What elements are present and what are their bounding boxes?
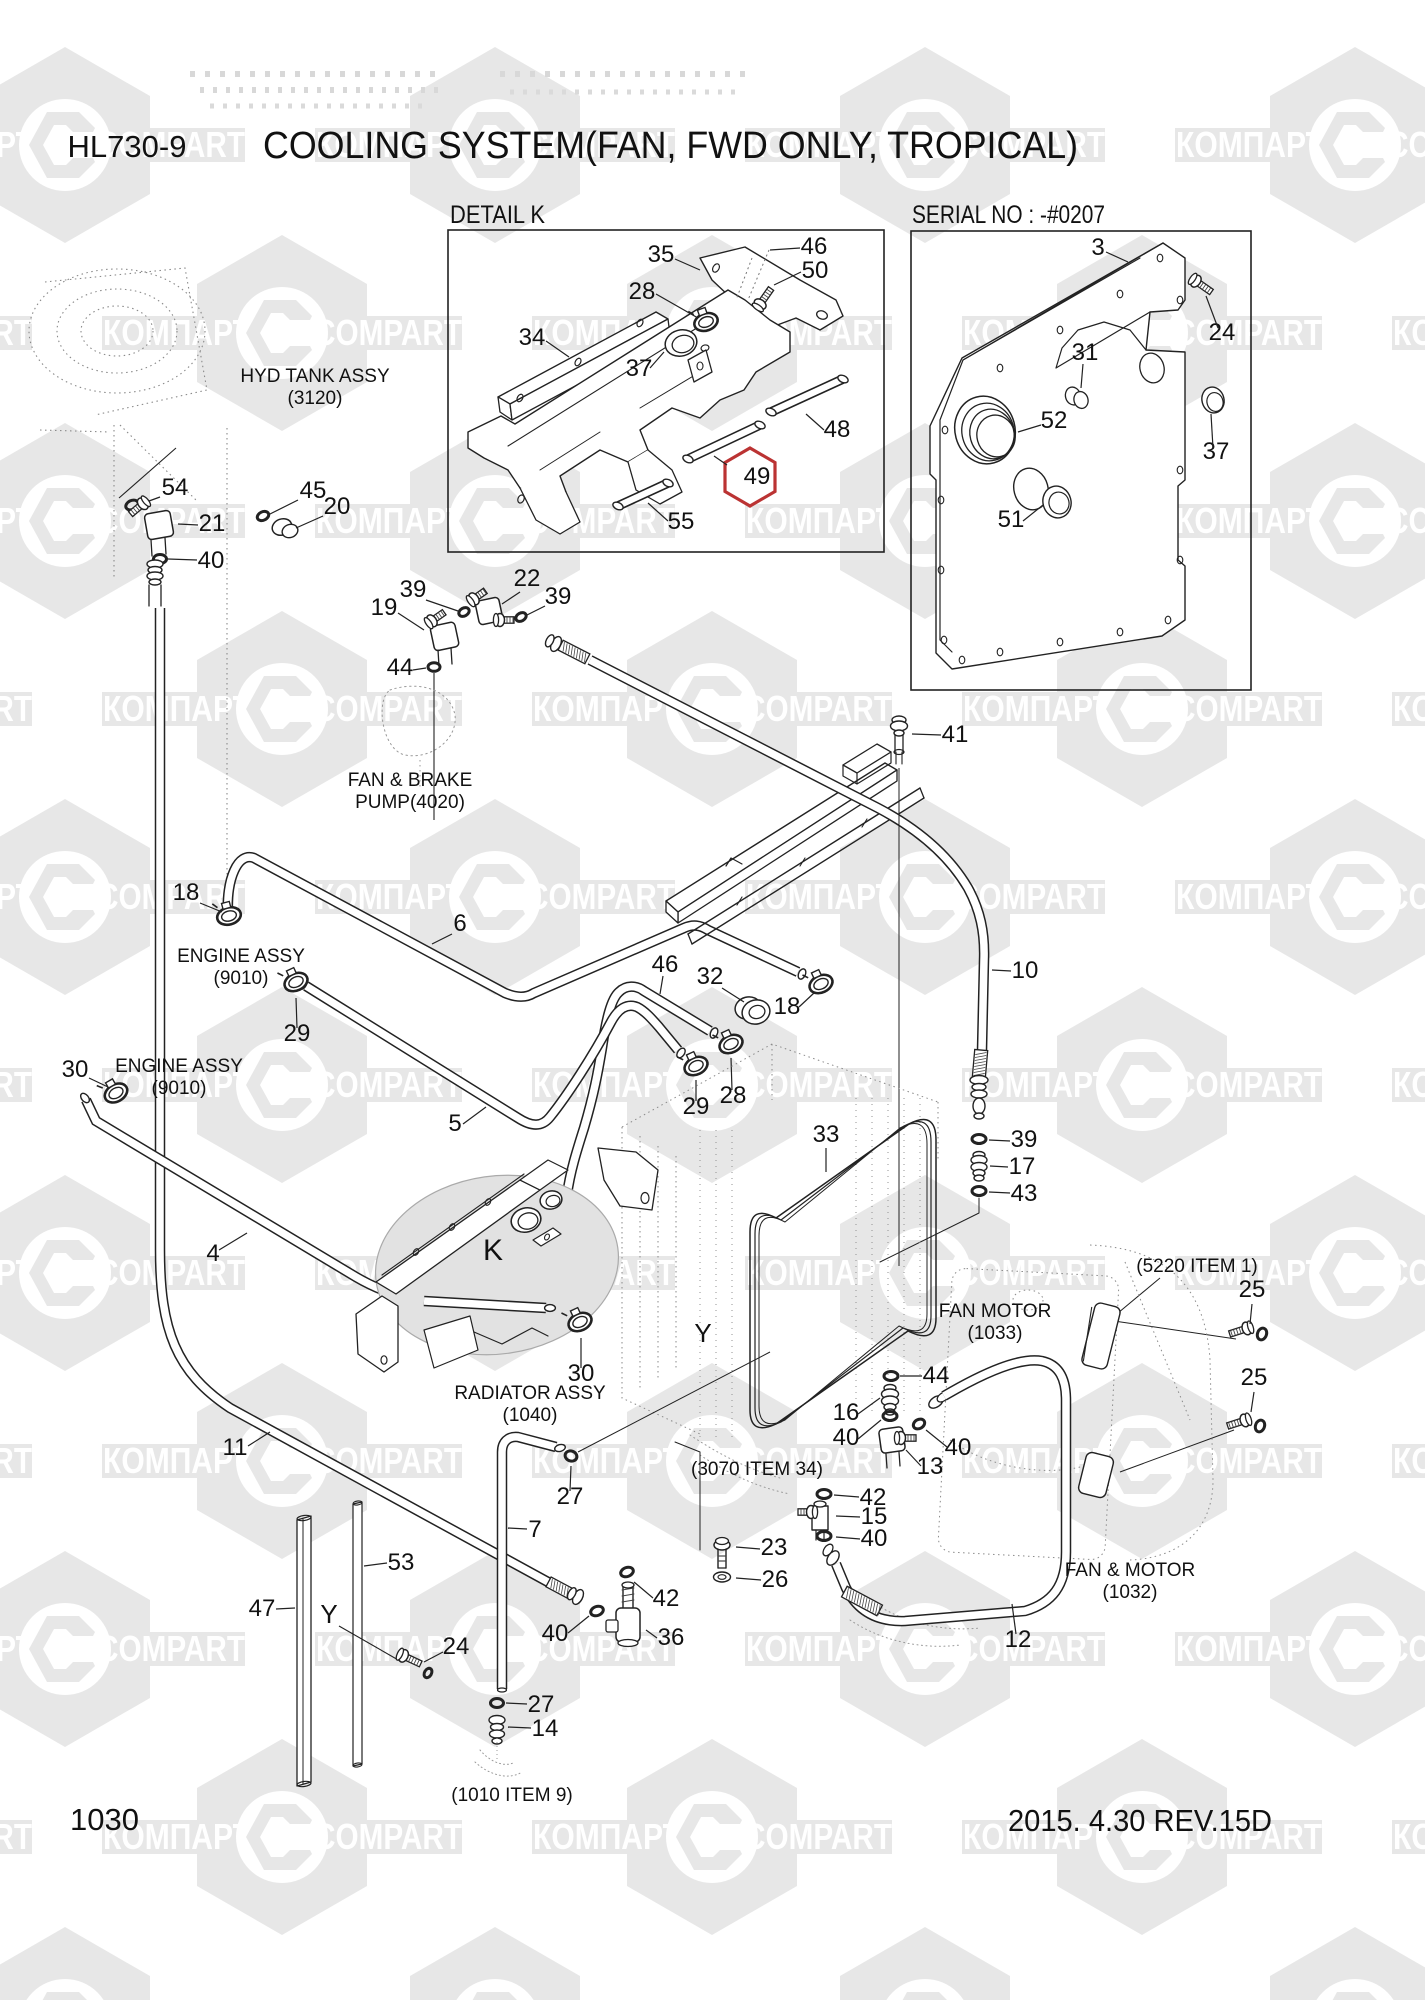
- svg-text:3: 3: [1091, 234, 1104, 261]
- svg-text:COMPART: COMPART: [1387, 1252, 1425, 1293]
- svg-text:ENGINE ASSY: ENGINE ASSY: [177, 946, 305, 967]
- svg-text:КОМПАРТ: КОМПАРТ: [103, 312, 251, 353]
- svg-text:39: 39: [545, 583, 572, 610]
- svg-text:(3070 ITEM 34): (3070 ITEM 34): [691, 1459, 823, 1480]
- svg-text:1030: 1030: [70, 1802, 139, 1837]
- svg-text:27: 27: [528, 1691, 555, 1718]
- svg-text:ENGINE ASSY: ENGINE ASSY: [115, 1056, 243, 1077]
- svg-text:31: 31: [1072, 339, 1099, 366]
- svg-text:55: 55: [668, 508, 695, 535]
- svg-text:36: 36: [658, 1624, 685, 1651]
- svg-text:(5220 ITEM 1): (5220 ITEM 1): [1136, 1256, 1257, 1277]
- svg-text:40: 40: [945, 1434, 972, 1461]
- svg-text:COMPART: COMPART: [0, 1440, 32, 1481]
- svg-text:COMPART: COMPART: [1174, 1064, 1322, 1105]
- svg-text:19: 19: [371, 594, 398, 621]
- svg-text:COMPART: COMPART: [1387, 124, 1425, 165]
- svg-text:35: 35: [648, 241, 675, 268]
- svg-text:44: 44: [923, 1362, 950, 1389]
- svg-text:(9010): (9010): [152, 1078, 207, 1099]
- svg-text:COMPART: COMPART: [744, 1816, 892, 1857]
- svg-text:COMPART: COMPART: [314, 312, 462, 353]
- svg-text:Y: Y: [694, 1318, 711, 1348]
- svg-text:24: 24: [1209, 319, 1236, 346]
- svg-text:14: 14: [532, 1715, 559, 1742]
- svg-text:PUMP(4020): PUMP(4020): [355, 792, 465, 813]
- svg-text:COMPART: COMPART: [97, 1252, 245, 1293]
- svg-text:КОМПАРТ: КОМПАРТ: [1176, 124, 1324, 165]
- svg-text:5: 5: [448, 1110, 461, 1137]
- svg-text:КОМПАРТ: КОМПАРТ: [1393, 688, 1425, 729]
- svg-text:26: 26: [762, 1566, 789, 1593]
- svg-text:COMPART: COMPART: [1174, 312, 1322, 353]
- svg-text:K: K: [483, 1234, 503, 1267]
- svg-text:(1010 ITEM 9): (1010 ITEM 9): [451, 1785, 572, 1806]
- svg-text:(1032): (1032): [1103, 1582, 1158, 1603]
- svg-text:39: 39: [1011, 1126, 1038, 1153]
- svg-text:28: 28: [720, 1082, 747, 1109]
- svg-text:SERIAL NO : -#0207: SERIAL NO : -#0207: [912, 201, 1105, 229]
- svg-text:КОМПАРТ: КОМПАРТ: [0, 124, 34, 165]
- svg-text:COMPART: COMPART: [314, 688, 462, 729]
- svg-text:COMPART: COMPART: [1387, 1628, 1425, 1669]
- svg-text:43: 43: [1011, 1180, 1038, 1207]
- svg-text:КОМПАРТ: КОМПАРТ: [1393, 1816, 1425, 1857]
- svg-text:КОМПАРТ: КОМПАРТ: [746, 500, 894, 541]
- svg-text:20: 20: [324, 493, 351, 520]
- svg-text:37: 37: [626, 355, 653, 382]
- svg-text:52: 52: [1041, 407, 1068, 434]
- svg-text:COMPART: COMPART: [527, 876, 675, 917]
- svg-text:47: 47: [249, 1595, 276, 1622]
- svg-text:COMPART: COMPART: [1174, 1440, 1322, 1481]
- svg-text:18: 18: [774, 993, 801, 1020]
- svg-text:КОМПАРТ: КОМПАРТ: [533, 1064, 681, 1105]
- svg-text:HL730-9: HL730-9: [68, 129, 187, 164]
- svg-text:FAN & BRAKE: FAN & BRAKE: [348, 770, 473, 791]
- svg-text:40: 40: [833, 1424, 860, 1451]
- svg-text:КОМПАРТ: КОМПАРТ: [963, 688, 1111, 729]
- svg-text:КОМПАРТ: КОМПАРТ: [1176, 876, 1324, 917]
- svg-text:COMPART: COMPART: [1387, 500, 1425, 541]
- svg-text:(1033): (1033): [968, 1323, 1023, 1344]
- svg-text:7: 7: [528, 1516, 541, 1543]
- svg-text:25: 25: [1239, 1276, 1266, 1303]
- svg-text:КОМПАРТ: КОМПАРТ: [1393, 312, 1425, 353]
- svg-text:FAN & MOTOR: FAN & MOTOR: [1065, 1560, 1196, 1581]
- svg-text:53: 53: [388, 1549, 415, 1576]
- svg-text:49: 49: [744, 463, 771, 490]
- svg-text:КОМПАРТ: КОМПАРТ: [0, 500, 34, 541]
- svg-text:45: 45: [300, 477, 327, 504]
- svg-text:18: 18: [173, 879, 200, 906]
- svg-text:COMPART: COMPART: [957, 1252, 1105, 1293]
- svg-text:(3120): (3120): [288, 388, 343, 409]
- svg-text:16: 16: [833, 1399, 860, 1426]
- svg-text:COMPART: COMPART: [1174, 688, 1322, 729]
- svg-text:COMPART: COMPART: [0, 1816, 32, 1857]
- svg-text:44: 44: [387, 654, 414, 681]
- svg-text:2015. 4.30 REV.15D: 2015. 4.30 REV.15D: [1008, 1803, 1272, 1838]
- svg-text:COMPART: COMPART: [0, 312, 32, 353]
- svg-text:COMPART: COMPART: [314, 1816, 462, 1857]
- svg-text:25: 25: [1241, 1364, 1268, 1391]
- svg-text:КОМПАРТ: КОМПАРТ: [0, 876, 34, 917]
- svg-text:COOLING SYSTEM(FAN, FWD ONLY,: COOLING SYSTEM(FAN, FWD ONLY, TROPICAL): [263, 125, 1078, 167]
- svg-text:23: 23: [761, 1534, 788, 1561]
- svg-text:КОМПАРТ: КОМПАРТ: [316, 876, 464, 917]
- svg-text:КОМПАРТ: КОМПАРТ: [1393, 1064, 1425, 1105]
- svg-text:12: 12: [1005, 1626, 1032, 1653]
- svg-text:40: 40: [198, 547, 225, 574]
- svg-text:COMPART: COMPART: [0, 1064, 32, 1105]
- svg-text:30: 30: [62, 1056, 89, 1083]
- svg-text:КОМПАРТ: КОМПАРТ: [1176, 500, 1324, 541]
- svg-text:46: 46: [652, 951, 679, 978]
- svg-text:10: 10: [1012, 957, 1039, 984]
- svg-text:КОМПАРТ: КОМПАРТ: [0, 1628, 34, 1669]
- svg-text:COMPART: COMPART: [1387, 876, 1425, 917]
- svg-text:37: 37: [1203, 438, 1230, 465]
- svg-text:40: 40: [542, 1620, 569, 1647]
- svg-text:КОМПАРТ: КОМПАРТ: [1393, 1440, 1425, 1481]
- svg-text:КОМПАРТ: КОМПАРТ: [746, 1628, 894, 1669]
- svg-text:17: 17: [1009, 1153, 1036, 1180]
- svg-text:6: 6: [453, 910, 466, 937]
- svg-text:RADIATOR ASSY: RADIATOR ASSY: [454, 1383, 606, 1404]
- svg-text:(1040): (1040): [503, 1405, 558, 1426]
- svg-text:КОМПАРТ: КОМПАРТ: [533, 1816, 681, 1857]
- svg-text:(9010): (9010): [214, 968, 269, 989]
- svg-text:54: 54: [162, 474, 189, 501]
- svg-text:51: 51: [998, 506, 1025, 533]
- svg-text:КОМПАРТ: КОМПАРТ: [1176, 1628, 1324, 1669]
- svg-text:24: 24: [443, 1633, 470, 1660]
- svg-text:COMPART: COMPART: [0, 688, 32, 729]
- svg-text:41: 41: [942, 721, 969, 748]
- svg-text:46: 46: [801, 233, 828, 260]
- svg-text:КОМПАРТ: КОМПАРТ: [103, 688, 251, 729]
- svg-text:Y: Y: [320, 1599, 337, 1629]
- svg-text:FAN MOTOR: FAN MOTOR: [939, 1301, 1052, 1322]
- svg-text:COMPART: COMPART: [97, 1628, 245, 1669]
- svg-text:4: 4: [206, 1240, 219, 1267]
- svg-text:28: 28: [629, 278, 656, 305]
- svg-text:22: 22: [514, 565, 541, 592]
- svg-text:48: 48: [824, 416, 851, 443]
- svg-text:11: 11: [223, 1434, 248, 1461]
- svg-text:21: 21: [199, 510, 226, 537]
- svg-text:HYD TANK ASSY: HYD TANK ASSY: [240, 366, 390, 387]
- svg-text:13: 13: [917, 1453, 944, 1480]
- svg-text:33: 33: [813, 1121, 840, 1148]
- svg-text:40: 40: [861, 1525, 888, 1552]
- svg-text:COMPART: COMPART: [744, 1064, 892, 1105]
- svg-text:42: 42: [653, 1585, 680, 1612]
- svg-text:32: 32: [697, 963, 724, 990]
- svg-text:КОМПАРТ: КОМПАРТ: [0, 1252, 34, 1293]
- svg-text:DETAIL K: DETAIL K: [450, 201, 545, 229]
- svg-text:39: 39: [400, 576, 427, 603]
- svg-text:34: 34: [519, 324, 546, 351]
- svg-text:COMPART: COMPART: [744, 688, 892, 729]
- svg-text:50: 50: [802, 257, 829, 284]
